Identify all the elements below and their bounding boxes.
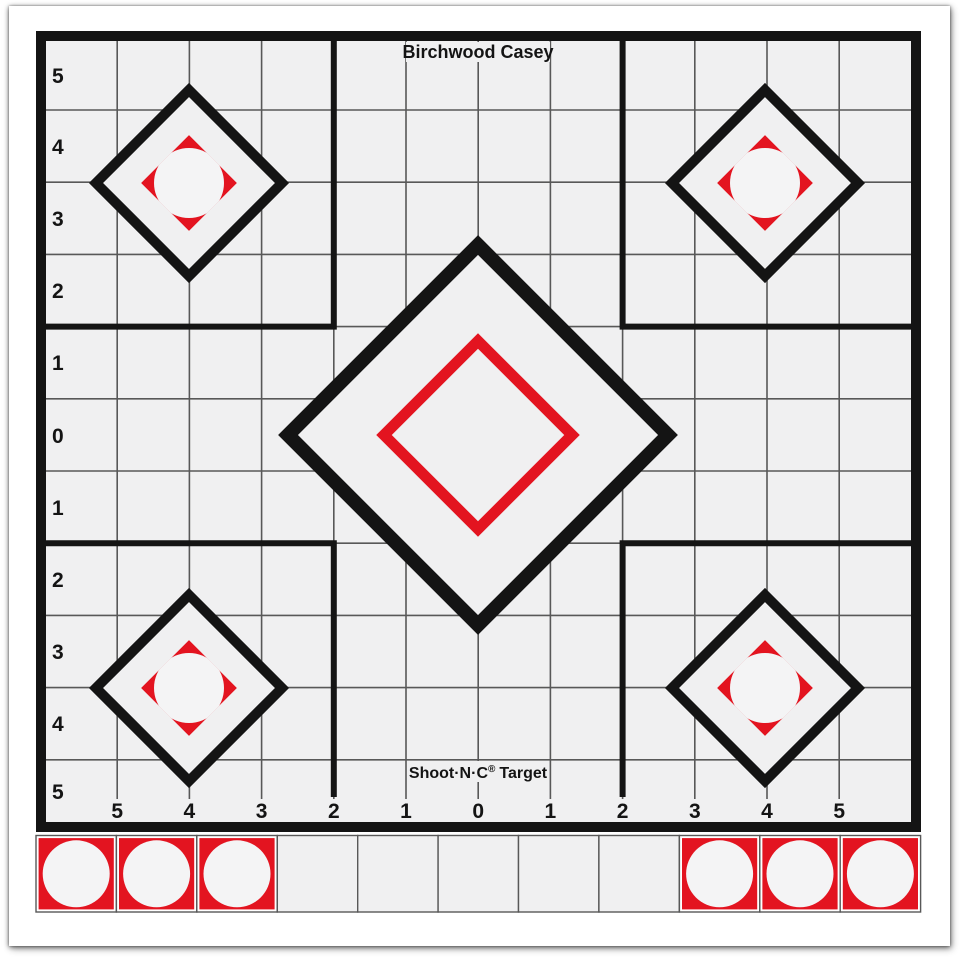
axis-label-left-8: 3 <box>52 641 64 664</box>
paster-circle <box>43 840 110 907</box>
axis-label-left-4: 1 <box>52 352 64 375</box>
axis-label-bottom-4: 1 <box>400 800 412 823</box>
strip-cell-empty-4 <box>358 836 438 913</box>
strip-cell-red-2 <box>197 836 277 913</box>
target-graphic: Birchwood Casey Shoot·N·C®Target 5 4 3 2… <box>0 0 960 960</box>
paster-circle <box>767 840 834 907</box>
paster-circle <box>686 840 753 907</box>
axis-label-bottom-2: 3 <box>256 800 268 823</box>
target-photo: Birchwood Casey Shoot·N·C®Target 5 4 3 2… <box>0 0 960 960</box>
axis-label-left-9: 4 <box>52 713 64 736</box>
axis-label-bottom-7: 2 <box>617 800 629 823</box>
axis-label-bottom-0: 5 <box>111 800 123 823</box>
strip-cell-red-10 <box>840 836 920 913</box>
paster-circle <box>204 840 271 907</box>
strip-cell-red-8 <box>679 836 759 913</box>
strip-cell-red-0 <box>36 836 116 913</box>
registered-mark: ® <box>488 764 496 775</box>
axis-label-bottom-8: 3 <box>689 800 701 823</box>
axis-label-left-1: 4 <box>52 136 64 159</box>
axis-label-bottom-10: 5 <box>833 800 845 823</box>
axis-label-bottom-6: 1 <box>545 800 557 823</box>
axis-label-left-2: 3 <box>52 208 64 231</box>
axis-label-bottom-5: 0 <box>472 800 484 823</box>
axis-label-bottom-9: 4 <box>761 800 773 823</box>
axis-label-left-7: 2 <box>52 569 64 592</box>
axis-label-bottom-3: 2 <box>328 800 340 823</box>
axis-label-left-0: 5 <box>52 65 64 88</box>
strip-cell-red-1 <box>116 836 196 913</box>
paster-circle <box>847 840 914 907</box>
brand-footer-word: Target <box>499 765 547 782</box>
paster-circle <box>123 840 190 907</box>
axis-label-left-6: 1 <box>52 497 64 520</box>
strip-cell-empty-3 <box>277 836 357 913</box>
axis-label-left-3: 2 <box>52 280 64 303</box>
paster-strip <box>36 836 921 913</box>
axis-label-left-5: 0 <box>52 425 64 448</box>
brand-footer: Shoot·N·C®Target <box>409 764 548 782</box>
brand-footer-name: Shoot·N·C <box>409 765 489 782</box>
strip-cell-empty-7 <box>599 836 679 913</box>
strip-cell-red-9 <box>760 836 840 913</box>
strip-cell-empty-5 <box>438 836 518 913</box>
axis-label-bottom-1: 4 <box>184 800 196 823</box>
strip-cell-empty-6 <box>519 836 599 913</box>
brand-title: Birchwood Casey <box>402 42 553 62</box>
axis-label-left-10: 5 <box>52 781 64 804</box>
